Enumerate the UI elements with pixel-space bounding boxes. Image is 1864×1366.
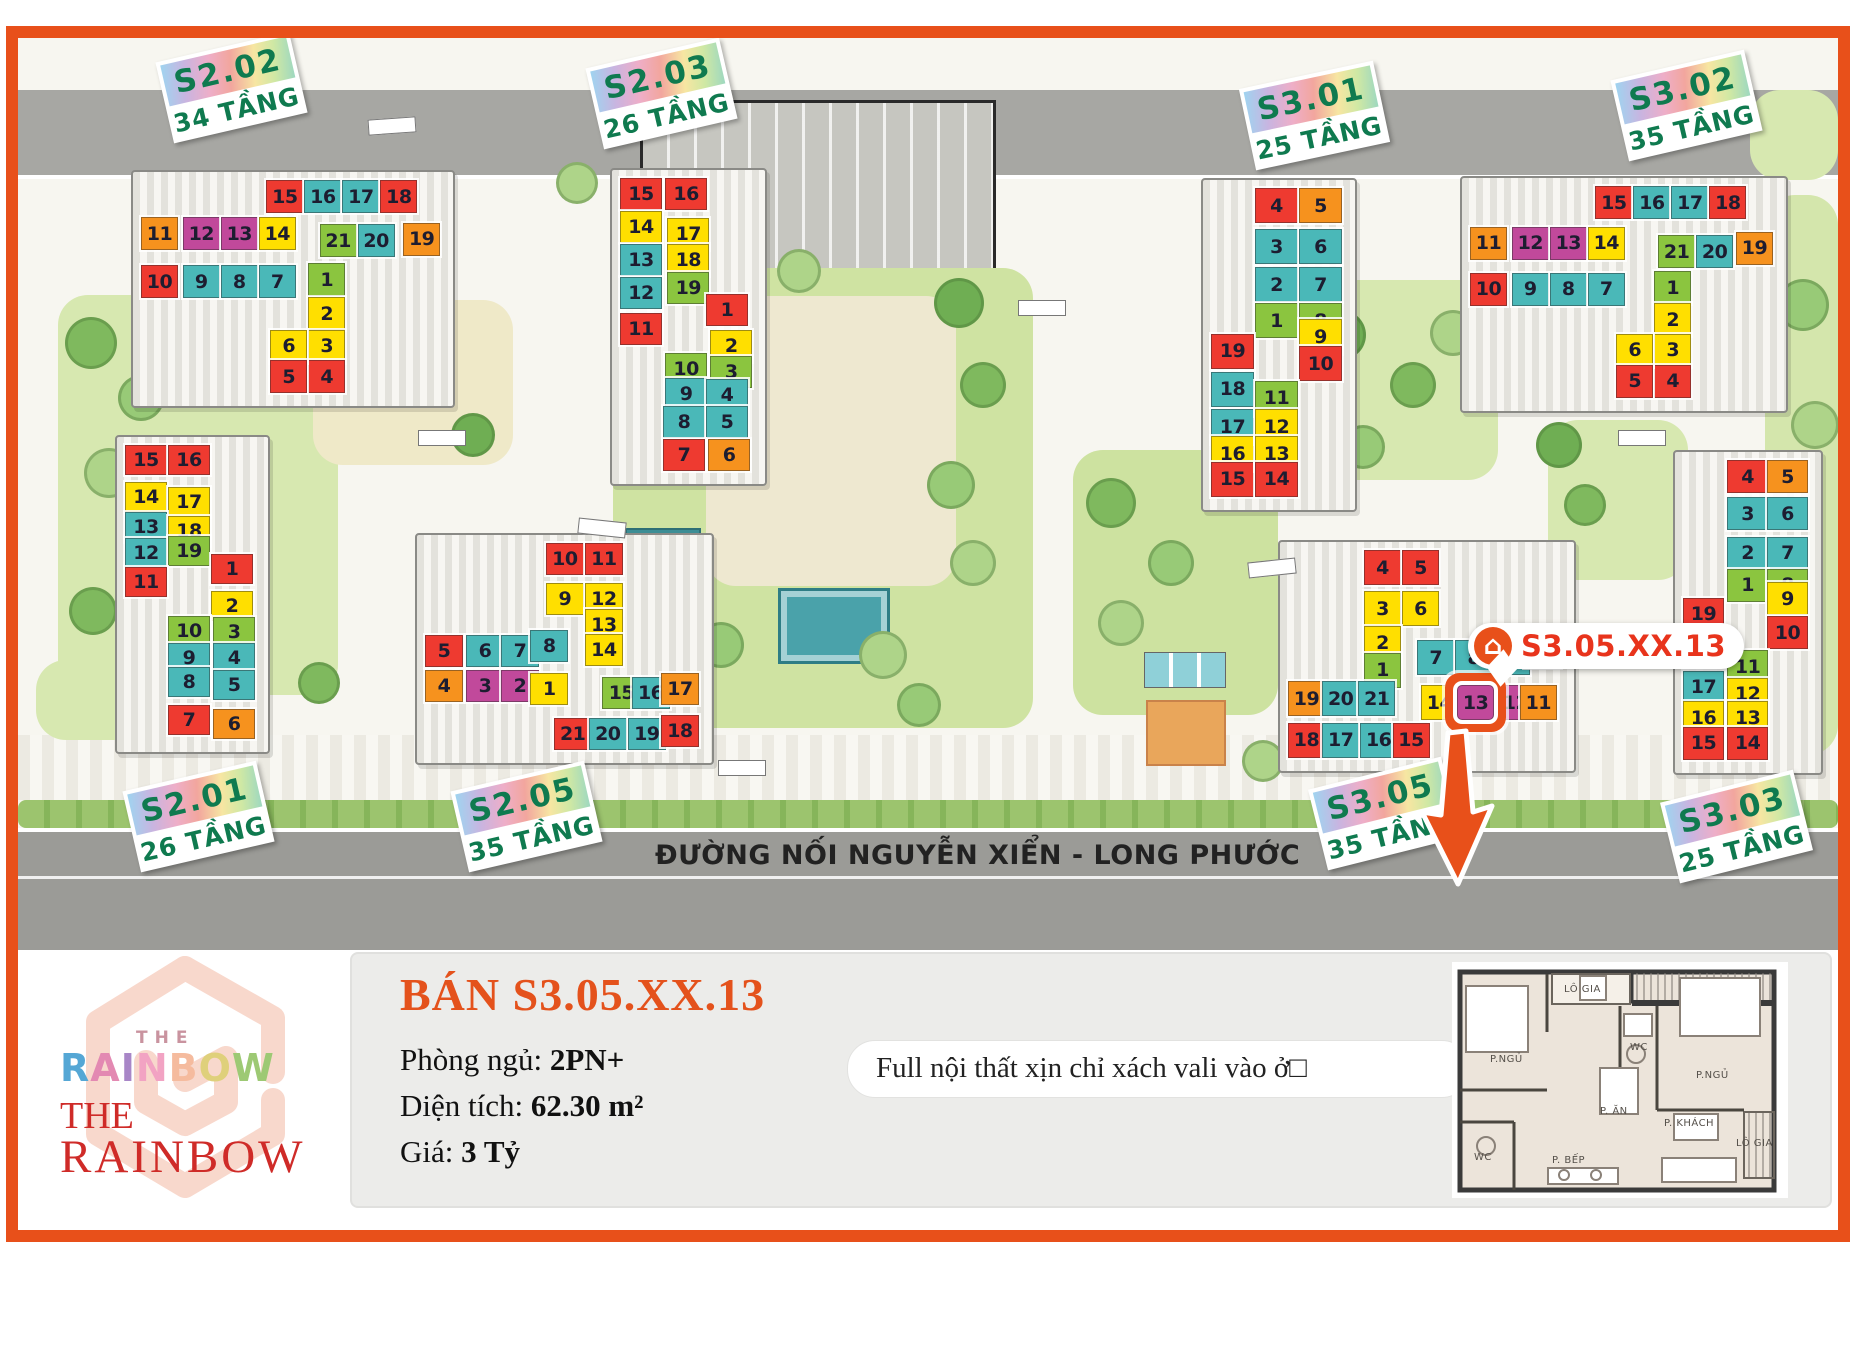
unit-cell-S3.03.5[interactable]: 5: [1767, 460, 1808, 493]
tree-icon: [1791, 401, 1838, 449]
map-sign: [1618, 430, 1666, 446]
tree-icon: [859, 631, 907, 679]
unit-callout[interactable]: ⌂ S3.05.XX.13: [1468, 623, 1744, 669]
unit-cell-S3.01.2[interactable]: 2: [1255, 267, 1298, 302]
unit-cell-S3.03.9[interactable]: 9: [1767, 582, 1808, 615]
unit-cell-S3.01.18[interactable]: 18: [1211, 372, 1254, 407]
floorplan-room-label: P.NGỦ: [1696, 1067, 1729, 1081]
listing-flyer: ĐƯỜNG NỐI NGUYỄN XIỂN - LONG PHƯỚC ⌂ S3.…: [0, 0, 1864, 1366]
unit-cell-S3.02.19[interactable]: 19: [1736, 232, 1773, 265]
map-sign: [1018, 300, 1066, 316]
logo-rainbow-red: RAINBOW: [60, 1130, 306, 1184]
unit-cell-S3.03.1[interactable]: 1: [1727, 569, 1768, 602]
unit-cell-S3.02.7[interactable]: 7: [1588, 273, 1625, 306]
unit-cell-S2.05.4[interactable]: 4: [425, 670, 463, 702]
tree-icon: [1148, 540, 1194, 586]
unit-cell-S3.02.21[interactable]: 21: [1658, 235, 1695, 268]
unit-cell-S2.01.5[interactable]: 5: [213, 670, 255, 700]
tree-icon: [298, 662, 340, 704]
unit-cell-S2.01.7[interactable]: 7: [168, 705, 210, 735]
unit-cell-S2.02.7[interactable]: 7: [259, 265, 296, 298]
unit-cell-S2.05.18[interactable]: 18: [661, 715, 699, 747]
unit-cell-S2.02.20[interactable]: 20: [358, 224, 395, 257]
unit-cell-S2.01.11[interactable]: 11: [125, 567, 167, 597]
unit-cell-S2.02.19[interactable]: 19: [403, 223, 440, 256]
unit-cell-S3.01.7[interactable]: 7: [1299, 267, 1342, 302]
unit-cell-S2.03.7[interactable]: 7: [663, 439, 705, 471]
unit-cell-S3.02.13[interactable]: 13: [1550, 227, 1587, 260]
unit-cell-S2.01.15[interactable]: 15: [125, 445, 167, 475]
unit-cell-S3.01.3[interactable]: 3: [1255, 229, 1298, 264]
pool-cabins: [1144, 652, 1226, 688]
unit-cell-S2.03.6[interactable]: 6: [708, 439, 750, 471]
logo-letter: I: [121, 1046, 136, 1090]
unit-cell-S3.02.5[interactable]: 5: [1616, 365, 1653, 398]
floorplan-room-label: P. KHÁCH: [1664, 1116, 1714, 1129]
area-field: Diện tích: 62.30 m²: [400, 1088, 643, 1124]
unit-cell-S3.02.10[interactable]: 10: [1470, 273, 1507, 306]
unit-cell-S3.05.7[interactable]: 7: [1417, 640, 1454, 675]
tree-icon: [777, 249, 821, 293]
floorplan-room-label: WC: [1474, 1152, 1492, 1163]
floorplan-room-label: P. ĂN: [1600, 1104, 1628, 1117]
unit-cell-S3.02.4[interactable]: 4: [1654, 365, 1691, 398]
unit-cell-S2.01.10[interactable]: 10: [168, 616, 210, 646]
unit-cell-S2.02.17[interactable]: 17: [342, 180, 379, 213]
logo-letter: N: [136, 1046, 169, 1090]
tree-icon: [65, 317, 117, 369]
unit-cell-S2.02.16[interactable]: 16: [304, 180, 341, 213]
unit-cell-S2.05.8[interactable]: 8: [530, 630, 568, 662]
unit-cell-S2.01.16[interactable]: 16: [168, 445, 210, 475]
unit-cell-S3.01.15[interactable]: 15: [1211, 462, 1254, 497]
unit-cell-S3.01.14[interactable]: 14: [1255, 462, 1298, 497]
floorplan-room-label: P. BẾP: [1552, 1152, 1585, 1166]
home-icon: ⌂: [1474, 627, 1512, 665]
unit-cell-S3.03.17[interactable]: 17: [1683, 671, 1724, 704]
unit-cell-S2.01.1[interactable]: 1: [211, 554, 253, 584]
unit-cell-S2.05.20[interactable]: 20: [589, 718, 627, 750]
unit-cell-S2.05.11[interactable]: 11: [585, 543, 623, 575]
unit-cell-S2.05.1[interactable]: 1: [530, 673, 568, 705]
unit-cell-S3.05.18[interactable]: 18: [1288, 723, 1325, 758]
tree-icon: [1098, 600, 1144, 646]
unit-cell-S3.02.8[interactable]: 8: [1550, 273, 1587, 306]
brand-logo: THE RAINBOW THE RAINBOW: [58, 952, 318, 1216]
listing-card: BÁN S3.05.XX.13 Phòng ngủ: 2PN+ Diện tíc…: [350, 952, 1832, 1208]
note-input[interactable]: Full nội thất xịn chỉ xách vali vào ở□: [847, 1040, 1470, 1098]
tree-icon: [556, 162, 598, 204]
unit-cell-S3.05.5[interactable]: 5: [1402, 550, 1439, 585]
logo-letter: B: [169, 1046, 199, 1090]
unit-cell-S2.02.3[interactable]: 3: [308, 330, 345, 363]
unit-cell-S2.02.2[interactable]: 2: [308, 297, 345, 330]
unit-cell-S2.02.14[interactable]: 14: [259, 217, 296, 250]
unit-cell-S3.05.13[interactable]: 13: [1457, 685, 1494, 720]
unit-cell-S3.03.14[interactable]: 14: [1727, 727, 1768, 760]
unit-cell-S3.02.20[interactable]: 20: [1696, 235, 1733, 268]
unit-cell-S2.03.13[interactable]: 13: [620, 244, 662, 276]
floorplan-room-label: LÔ GIA: [1564, 982, 1601, 995]
unit-cell-S2.02.18[interactable]: 18: [380, 180, 417, 213]
floorplan-room-label: WC: [1630, 1042, 1648, 1053]
unit-cell-S3.03.10[interactable]: 10: [1767, 616, 1808, 649]
map-sign: [368, 116, 417, 135]
tree-icon: [1086, 478, 1136, 528]
floorplan-thumbnail: LÔ GIA WC P.NGỦ P.NGỦ P. ĂN P. KHÁCH LÔ …: [1452, 962, 1788, 1198]
unit-callout-label: S3.05.XX.13: [1521, 629, 1726, 663]
unit-cell-S3.02.1[interactable]: 1: [1654, 271, 1691, 304]
unit-cell-S3.02.14[interactable]: 14: [1588, 227, 1625, 260]
tree-icon: [1564, 484, 1606, 526]
unit-cell-S2.02.1[interactable]: 1: [308, 263, 345, 296]
unit-cell-S3.01.10[interactable]: 10: [1299, 346, 1342, 381]
unit-cell-S2.01.12[interactable]: 12: [125, 538, 167, 568]
unit-cell-S2.03.1[interactable]: 1: [706, 294, 748, 326]
unit-cell-S3.03.4[interactable]: 4: [1727, 460, 1768, 493]
unit-cell-S2.02.10[interactable]: 10: [141, 265, 178, 298]
unit-cell-S2.05.6[interactable]: 6: [466, 635, 504, 667]
unit-cell-S3.05.3[interactable]: 3: [1364, 591, 1401, 626]
road-label: ĐƯỜNG NỐI NGUYỄN XIỂN - LONG PHƯỚC: [655, 840, 1300, 871]
tree-icon: [1536, 422, 1582, 468]
unit-cell-S3.05.11[interactable]: 11: [1520, 685, 1557, 720]
unit-cell-S2.03.5[interactable]: 5: [706, 406, 748, 438]
unit-cell-S2.05.9[interactable]: 9: [546, 583, 584, 615]
unit-cell-S2.02.8[interactable]: 8: [221, 265, 258, 298]
logo-letter: W: [232, 1046, 275, 1090]
unit-cell-S3.05.20[interactable]: 20: [1322, 681, 1359, 716]
unit-cell-S3.02.17[interactable]: 17: [1671, 186, 1708, 219]
logo-letter: R: [60, 1046, 90, 1090]
unit-cell-S3.02.9[interactable]: 9: [1512, 273, 1549, 306]
unit-cell-S2.03.12[interactable]: 12: [620, 277, 662, 309]
tree-icon: [960, 362, 1006, 408]
tree-icon: [950, 540, 996, 586]
unit-cell-S3.02.11[interactable]: 11: [1470, 227, 1507, 260]
unit-cell-S2.05.21[interactable]: 21: [554, 718, 592, 750]
unit-cell-S2.03.19[interactable]: 19: [667, 272, 709, 304]
unit-cell-S2.02.5[interactable]: 5: [270, 360, 307, 393]
unit-cell-S2.01.8[interactable]: 8: [168, 667, 210, 697]
map-sign: [718, 760, 766, 776]
unit-cell-S2.05.14[interactable]: 14: [585, 634, 623, 666]
site-plan-map: ĐƯỜNG NỐI NGUYỄN XIỂN - LONG PHƯỚC ⌂ S3.…: [18, 38, 1838, 950]
unit-cell-S2.03.8[interactable]: 8: [663, 406, 705, 438]
logo-letter: O: [199, 1046, 232, 1090]
unit-cell-S3.03.3[interactable]: 3: [1727, 497, 1768, 530]
logo-the-small: THE: [136, 1028, 194, 1048]
unit-cell-S3.02.6[interactable]: 6: [1616, 334, 1653, 367]
road-marking: [18, 876, 1838, 879]
listing-title: BÁN S3.05.XX.13: [400, 968, 765, 1021]
tree-icon: [927, 461, 975, 509]
unit-cell-S3.05.19[interactable]: 19: [1288, 681, 1325, 716]
unit-cell-S3.01.5[interactable]: 5: [1299, 188, 1342, 223]
tree-icon: [934, 278, 984, 328]
tree-icon: [69, 587, 117, 635]
unit-cell-S2.05.10[interactable]: 10: [546, 543, 584, 575]
unit-cell-S3.01.19[interactable]: 19: [1211, 334, 1254, 369]
unit-cell-S3.05.15[interactable]: 15: [1393, 723, 1430, 758]
unit-cell-S2.03.15[interactable]: 15: [620, 178, 662, 210]
unit-cell-S2.02.4[interactable]: 4: [308, 360, 345, 393]
unit-cell-S2.02.11[interactable]: 11: [141, 217, 178, 250]
hedge-row: [18, 800, 1838, 828]
unit-cell-S2.01.14[interactable]: 14: [125, 482, 167, 512]
unit-cell-S3.05.4[interactable]: 4: [1364, 550, 1401, 585]
unit-cell-S3.01.4[interactable]: 4: [1255, 188, 1298, 223]
unit-cell-S2.03.16[interactable]: 16: [665, 178, 707, 210]
unit-cell-S3.03.15[interactable]: 15: [1683, 727, 1724, 760]
info-section: THE RAINBOW THE RAINBOW BÁN S3.05.XX.13 …: [18, 950, 1838, 1218]
bedrooms-field: Phòng ngủ: 2PN+: [400, 1042, 624, 1078]
unit-cell-S2.01.19[interactable]: 19: [168, 536, 210, 566]
unit-cell-S2.03.14[interactable]: 14: [620, 211, 662, 243]
logo-letter: A: [90, 1046, 120, 1090]
floorplan-room-label: P.NGỦ: [1490, 1051, 1523, 1065]
logo-rainbow-colored: RAINBOW: [60, 1046, 275, 1090]
green-area: [1750, 90, 1838, 180]
unit-cell-S2.02.9[interactable]: 9: [183, 265, 220, 298]
unit-cell-S2.05.17[interactable]: 17: [661, 673, 699, 705]
map-sign: [418, 430, 466, 446]
unit-cell-S3.01.6[interactable]: 6: [1299, 229, 1342, 264]
price-field: Giá: 3 Tỷ: [400, 1134, 520, 1170]
unit-cell-S3.03.6[interactable]: 6: [1767, 497, 1808, 530]
tree-icon: [897, 683, 941, 727]
unit-cell-S2.03.11[interactable]: 11: [620, 313, 662, 345]
unit-cell-S2.02.6[interactable]: 6: [270, 330, 307, 363]
unit-cell-S2.05.3[interactable]: 3: [466, 670, 504, 702]
unit-cell-S3.02.16[interactable]: 16: [1633, 186, 1670, 219]
tree-icon: [1390, 362, 1436, 408]
unit-cell-S2.01.6[interactable]: 6: [213, 709, 255, 739]
unit-cell-S3.02.2[interactable]: 2: [1654, 303, 1691, 336]
unit-cell-S3.05.6[interactable]: 6: [1402, 591, 1439, 626]
floorplan-room-label: LÔ GIA: [1736, 1136, 1773, 1149]
floorplan-svg: LÔ GIA WC P.NGỦ P.NGỦ P. ĂN P. KHÁCH LÔ …: [1452, 962, 1788, 1198]
unit-cell-S3.05.14[interactable]: 14: [1421, 685, 1458, 720]
unit-cell-S3.05.21[interactable]: 21: [1358, 681, 1395, 716]
unit-cell-S3.05.17[interactable]: 17: [1322, 723, 1359, 758]
unit-cell-S3.03.2[interactable]: 2: [1727, 537, 1768, 570]
unit-cell-S3.02.3[interactable]: 3: [1654, 334, 1691, 367]
unit-cell-S3.02.18[interactable]: 18: [1709, 186, 1746, 219]
unit-cell-S2.01.17[interactable]: 17: [168, 487, 210, 517]
unit-cell-S2.02.15[interactable]: 15: [266, 180, 303, 213]
unit-cell-S3.03.7[interactable]: 7: [1767, 537, 1808, 570]
unit-cell-S2.05.5[interactable]: 5: [425, 635, 463, 667]
unit-cell-S3.01.1[interactable]: 1: [1255, 303, 1298, 338]
unit-cell-S2.02.12[interactable]: 12: [183, 217, 220, 250]
basketball-court: [1146, 700, 1226, 766]
unit-cell-S2.02.21[interactable]: 21: [320, 224, 357, 257]
unit-cell-S3.02.12[interactable]: 12: [1512, 227, 1549, 260]
unit-cell-S3.02.15[interactable]: 15: [1595, 186, 1632, 219]
unit-cell-S2.02.13[interactable]: 13: [221, 217, 258, 250]
